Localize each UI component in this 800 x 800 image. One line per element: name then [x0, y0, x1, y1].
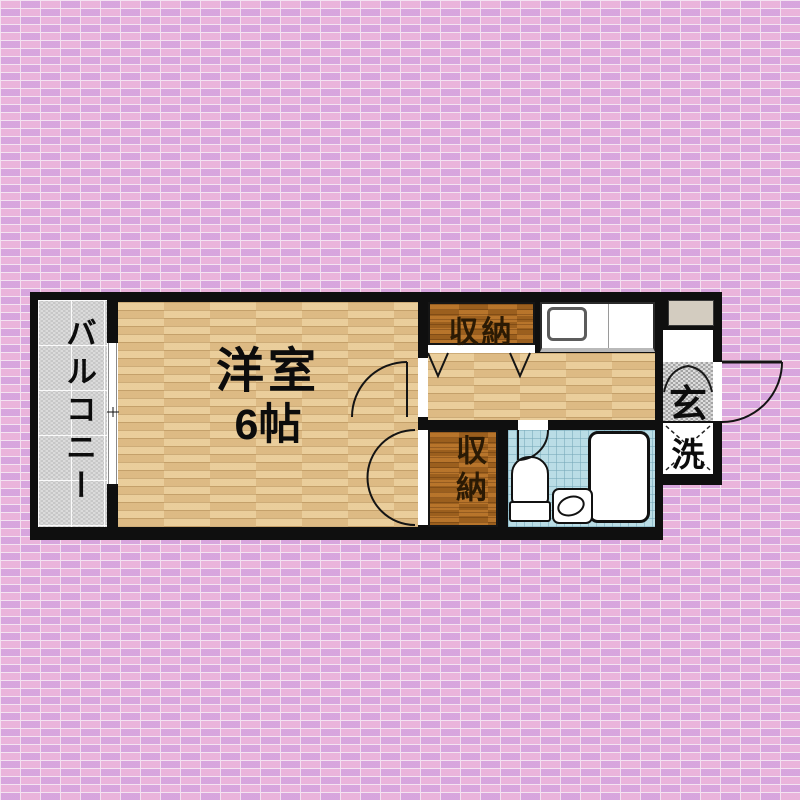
- folding-door-icon: [428, 353, 448, 376]
- bathroom-door-arc: [518, 430, 548, 460]
- laundry-label: 洗: [663, 428, 713, 476]
- closet-lower-label: 収納: [446, 434, 491, 508]
- folding-door-icon: [510, 353, 530, 376]
- entrance-label: 玄: [663, 373, 713, 428]
- brick-wallpaper-background: { "floorplan": { "balcony_label": "バルコニー…: [0, 0, 800, 800]
- room-size-label: 6帖: [118, 402, 418, 448]
- closet-upper-label: 収納: [428, 307, 535, 351]
- balcony-label: バルコニー: [56, 317, 101, 507]
- closet-door-arc-bottom: [368, 478, 416, 526]
- room-name-label: 洋室: [118, 346, 418, 398]
- room-label-block: 洋室 6帖: [118, 346, 418, 448]
- front-door-arc: [722, 362, 782, 422]
